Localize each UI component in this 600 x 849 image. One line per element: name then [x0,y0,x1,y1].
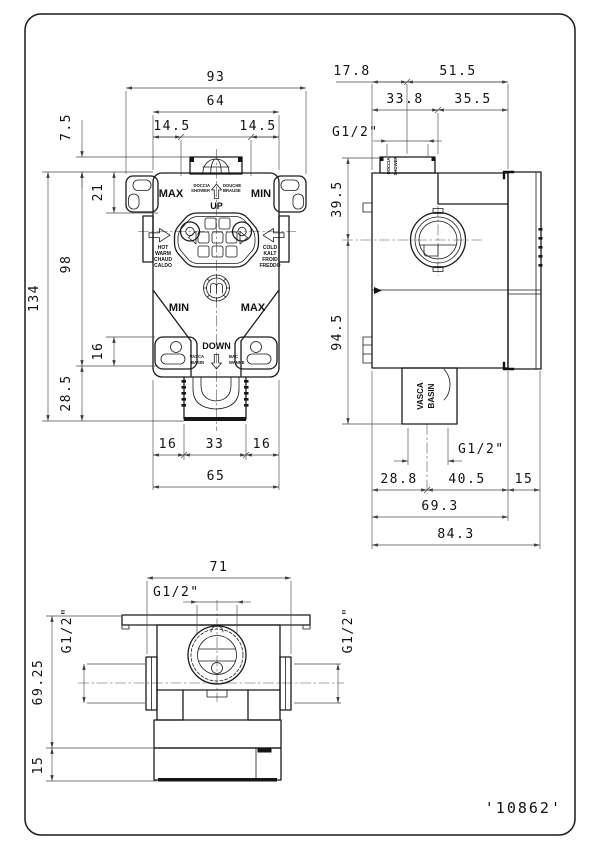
drawing-border [25,14,575,835]
label-side-basin: BASIN [427,383,436,408]
dim-side-k: 84.3 [437,527,474,542]
dim-ear-height: 21 [91,183,106,202]
label-down: DOWN [202,341,231,351]
front-dim-ticks [178,134,254,458]
label-min-top: MIN [251,188,271,200]
dim-thread-left: G1/2" [60,607,75,654]
dim-thread-right: G1/2" [341,607,356,654]
dim-side-h: 40.5 [448,472,485,487]
dim-side-e: 39.5 [330,180,345,217]
label-max-top: MAX [159,188,184,200]
front-labels: MAX MIN DOCCIA SHOWER DOUCHE BRAUSE UP H… [154,183,281,365]
side-body-outline [363,157,541,424]
side-housing-marks [380,157,543,369]
dim-outlet-left: 16 [159,437,178,452]
dim-total-width: 93 [207,70,226,85]
dim-thread-bottom: G1/2" [458,442,505,457]
label-side-vasca: VASCA [416,382,425,410]
label-up: UP [210,201,223,211]
dim-body-width: 65 [207,469,226,484]
dim-side-i: 15 [515,472,534,487]
dim-offset-right: 14.5 [239,119,276,134]
dim-top-width: 64 [207,94,226,109]
dim-offset-left: 14.5 [153,119,190,134]
front-view: MAX MIN DOCCIA SHOWER DOUCHE BRAUSE UP H… [27,70,306,490]
dim-outlet-width: 33 [206,437,225,452]
dim-outlet-right: 16 [253,437,272,452]
dim-side-d: 35.5 [454,92,491,107]
label-wanne: WANNE [229,360,245,365]
label-freddo: FREDDO [259,263,280,269]
label-brause: BRAUSE [223,188,241,193]
front-dimension-texts: 93 64 14.5 14.5 7.5 21 98 134 16 28.5 16… [27,70,277,484]
dim-bottom-width: 71 [210,560,229,575]
dim-side-c: 33.8 [386,92,423,107]
dim-body-height: 98 [59,255,74,274]
side-dimension-texts: 17.8 51.5 33.8 35.5 G1/2" 39.5 94.5 G1/2… [330,64,533,542]
dim-side-j: 69.3 [421,499,458,514]
dim-side-g: 28.8 [380,472,417,487]
side-labels: DOCCIA SHOWER VASCA BASIN [386,157,436,410]
label-port-doccia: DOCCIA [386,158,391,175]
hot-arrow-icon [149,229,170,242]
technical-drawing: MAX MIN DOCCIA SHOWER DOUCHE BRAUSE UP H… [0,0,600,849]
side-dimension-lines [336,82,540,549]
side-view: DOCCIA SHOWER VASCA BASIN [330,64,543,549]
cold-arrow-icon [263,229,284,242]
dim-total-height: 134 [27,284,42,312]
bottom-dimension-lines [46,578,341,781]
dim-bottom-height: 69.25 [31,659,46,706]
part-number: '10862' [485,799,562,817]
label-caldo: CALDO [154,263,172,269]
dim-lower-offset: 16 [91,342,106,361]
dim-side-f: 94.5 [330,313,345,350]
label-max-bottom: MAX [241,302,266,314]
label-port-shower: SHOWER [393,157,398,176]
label-vasca: VASCA [190,354,204,359]
dim-bottom-height: 28.5 [59,374,74,411]
dim-side-a: 17.8 [333,64,370,79]
bottom-dimension-texts: 71 G1/2" G1/2" G1/2" 69.25 15 [31,560,356,774]
dim-thread-center: G1/2" [153,585,200,600]
front-dimension-lines [42,88,306,490]
dim-base-height: 15 [31,756,46,775]
dim-side-b: 51.5 [439,64,476,79]
bottom-view: 71 G1/2" G1/2" G1/2" 69.25 15 [31,560,356,782]
dim-thread-top: G1/2" [332,125,379,140]
dim-stub-height: 7.5 [59,113,74,141]
label-shower: SHOWER [191,188,210,193]
label-bac: BAC [229,354,238,359]
globe-plug-icon [203,159,229,185]
bottom-body-outline [122,615,310,782]
label-min-bottom: MIN [169,302,189,314]
front-outlet-pipe [184,377,246,421]
label-basin: BASIN [191,360,204,365]
